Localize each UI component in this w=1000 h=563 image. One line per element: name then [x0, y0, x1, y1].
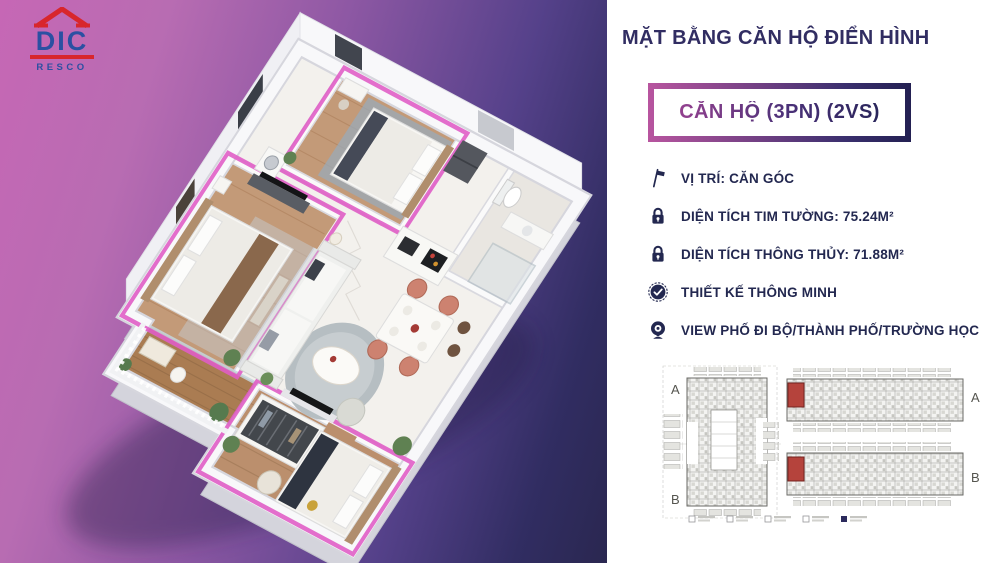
- hero-render-panel: DIC RESCO: [0, 0, 607, 563]
- feature-text: VỊ TRÍ: CĂN GÓC: [681, 171, 794, 186]
- plate-label: A: [971, 390, 980, 405]
- info-panel: MẶT BẰNG CĂN HỘ ĐIỂN HÌNH CĂN HỘ (3PN) (…: [607, 0, 1000, 563]
- flag-icon: [648, 168, 668, 188]
- check-badge-icon: [648, 282, 668, 302]
- logo-underline: [30, 55, 94, 59]
- dic-logo: DIC RESCO: [17, 7, 107, 73]
- apartment-3d-render: [0, 0, 607, 563]
- logo-roof-icon: [34, 7, 90, 28]
- feature-item-gross-area: DIỆN TÍCH TIM TƯỜNG: 75.24M²: [648, 206, 1000, 226]
- lock-icon: [648, 206, 668, 226]
- floorplate-diagrams: A B A B: [655, 364, 985, 527]
- feature-item-smart-design: THIẾT KẾ THÔNG MINH: [648, 282, 1000, 302]
- highlighted-unit: [788, 457, 804, 481]
- feature-item-view: VIEW PHỐ ĐI BỘ/THÀNH PHỐ/TRƯỜNG HỌC: [648, 320, 1000, 340]
- floorplate-right: A B: [787, 368, 980, 506]
- page: DIC RESCO MẶT BẰNG CĂN HỘ ĐIỂN HÌNH CĂN …: [0, 0, 1000, 563]
- unit-type-label: CĂN HỘ (3PN) (2VS): [679, 101, 880, 124]
- plate-label: B: [971, 470, 980, 485]
- feature-text: DIỆN TÍCH THÔNG THỦY: 71.88M²: [681, 247, 904, 262]
- unit-type-badge: CĂN HỘ (3PN) (2VS): [648, 83, 911, 142]
- lock-icon: [648, 244, 668, 264]
- webcam-icon: [648, 320, 668, 340]
- unit-type-badge-inner: CĂN HỘ (3PN) (2VS): [654, 89, 905, 136]
- logo-subname: RESCO: [36, 62, 87, 73]
- floorplate-left: A B: [663, 366, 781, 518]
- feature-item-net-area: DIỆN TÍCH THÔNG THỦY: 71.88M²: [648, 244, 1000, 264]
- plate-label: B: [671, 492, 680, 507]
- plate-label: A: [671, 382, 680, 397]
- feature-item-location: VỊ TRÍ: CĂN GÓC: [648, 168, 1000, 188]
- page-title: MẶT BẰNG CĂN HỘ ĐIỂN HÌNH: [622, 27, 990, 50]
- feature-text: VIEW PHỐ ĐI BỘ/THÀNH PHỐ/TRƯỜNG HỌC: [681, 323, 979, 338]
- highlighted-unit: [788, 383, 804, 407]
- feature-text: DIỆN TÍCH TIM TƯỜNG: 75.24M²: [681, 209, 894, 224]
- feature-list: VỊ TRÍ: CĂN GÓC DIỆN TÍCH TIM TƯỜNG: 75.…: [648, 168, 1000, 340]
- feature-text: THIẾT KẾ THÔNG MINH: [681, 285, 837, 300]
- logo-name: DIC: [36, 28, 89, 54]
